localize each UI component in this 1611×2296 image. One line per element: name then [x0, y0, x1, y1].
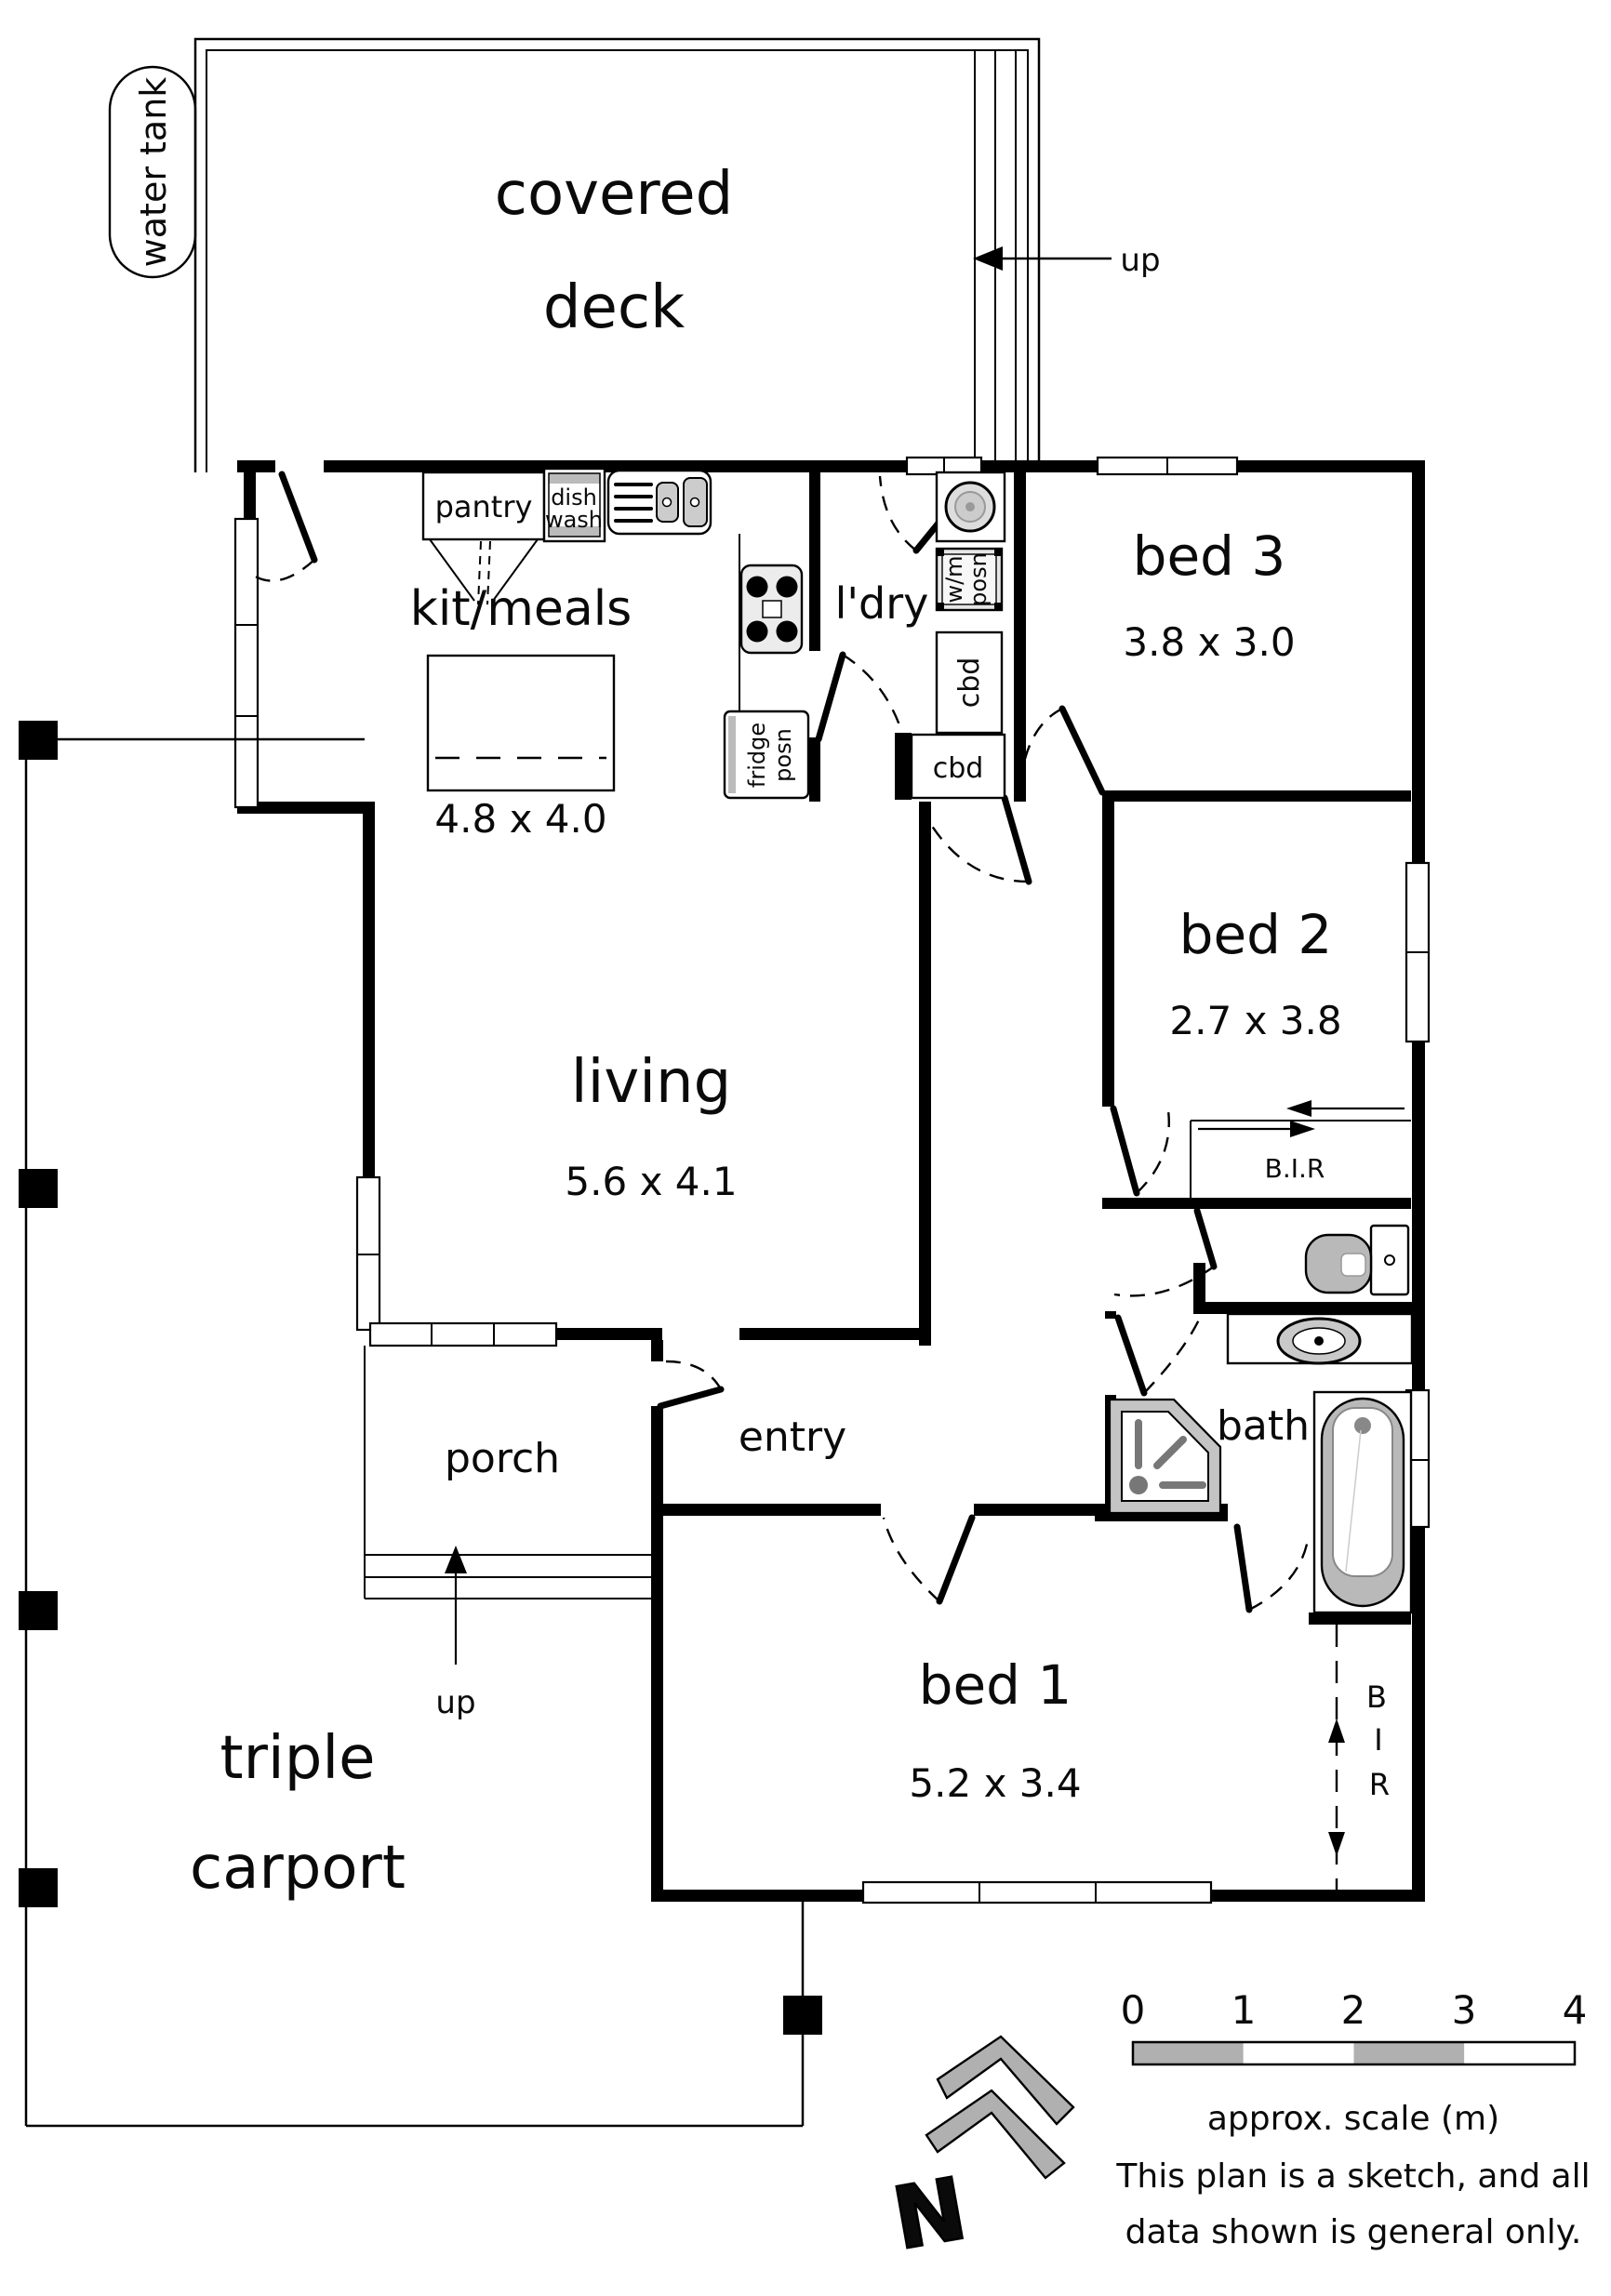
window [1406, 863, 1429, 1042]
wm-label-2: posn [965, 552, 992, 606]
water-tank-label: water tank [133, 77, 174, 268]
window [235, 519, 258, 807]
window [370, 1323, 556, 1346]
porch-up-label: up [435, 1684, 475, 1721]
deck-up-arrow-icon [973, 246, 1112, 271]
bed3-room: bed 3 3.8 x 3.0 [1123, 524, 1295, 665]
bed1-room: bed 1 5.2 x 3.4 B I R [909, 1625, 1390, 1890]
door [884, 1518, 972, 1601]
kitchen: pantry dish wash [410, 469, 808, 842]
living-label: living [571, 1048, 731, 1117]
bed2-bir: B.I.R [1191, 1100, 1411, 1198]
walls [237, 460, 1425, 1902]
door [1019, 709, 1102, 792]
bed2-dims: 2.7 x 3.8 [1169, 998, 1341, 1043]
bed1-dims: 5.2 x 3.4 [909, 1760, 1081, 1806]
bathtub [1314, 1392, 1411, 1613]
deck-label-2: deck [543, 273, 685, 342]
bed1-label: bed 1 [919, 1653, 1072, 1717]
sliding-door-arrows-icon [1198, 1100, 1405, 1137]
deck-label-1: covered [495, 160, 734, 229]
scale-tick-0: 0 [1121, 1987, 1146, 2033]
floor-plan-page: water tank covered deck up [0, 0, 1611, 2296]
carport-post [783, 1996, 822, 2035]
cbd-lower-label: cbd [933, 752, 984, 785]
scale-bar: 0 1 2 3 4 approx. scale (m) This plan is… [1115, 1987, 1590, 2251]
carport-label-1: triple [220, 1724, 376, 1793]
toilet [1306, 1226, 1408, 1294]
wm-label-1: w/m [941, 555, 967, 603]
dishwasher-label-2: wash [545, 507, 603, 533]
laundry-label: l'dry [835, 578, 929, 629]
kitchen-label: kit/meals [410, 581, 632, 637]
cupboard-lower: cbd [912, 735, 1005, 798]
washing-machine: w/m posn [937, 549, 1002, 610]
door [1113, 1108, 1169, 1193]
window [357, 1177, 379, 1330]
disclaimer-line-2: data shown is general only. [1125, 2213, 1582, 2251]
bathroom: bath [1110, 1314, 1412, 1613]
bath-label: bath [1217, 1402, 1310, 1450]
bed1-bir-r: R [1369, 1767, 1390, 1802]
cupboard-upper: cbd [937, 632, 1002, 733]
porch: porch up [365, 1346, 651, 1721]
door [1237, 1527, 1309, 1610]
carport-post [19, 1591, 58, 1630]
bed1-bir-b: B [1366, 1679, 1387, 1715]
dishwasher: dish wash [544, 469, 605, 541]
laundry-tub [937, 472, 1005, 541]
disclaimer-line-1: This plan is a sketch, and all [1115, 2157, 1590, 2196]
stove [741, 565, 802, 653]
fridge-label-1: fridge [744, 723, 770, 788]
door [1118, 1309, 1204, 1393]
fridge-label-2: posn [770, 728, 796, 782]
bed1-bir-i: I [1374, 1722, 1382, 1758]
bed1-bir: B I R [1328, 1625, 1390, 1890]
door [919, 798, 1029, 882]
scale-tick-4: 4 [1563, 1987, 1588, 2033]
north-arrow-icon: N [885, 2037, 1073, 2269]
carport-post [19, 1868, 58, 1907]
bed2-label: bed 2 [1179, 903, 1333, 966]
pantry-label: pantry [435, 489, 533, 524]
covered-deck: covered deck up [195, 39, 1161, 472]
entry-area: entry [739, 1413, 846, 1461]
carport-post [19, 721, 58, 760]
door [660, 1361, 721, 1406]
windows [235, 458, 1429, 1903]
fridge: fridge posn [725, 711, 808, 798]
meals-table [428, 656, 614, 790]
vanity [1228, 1314, 1412, 1363]
shower [1110, 1400, 1220, 1513]
window [1098, 458, 1237, 474]
scale-tick-2: 2 [1341, 1987, 1366, 2033]
sink [608, 471, 711, 534]
porch-up-arrow-icon [445, 1546, 467, 1665]
carport: triple carport [19, 721, 822, 2126]
entry-label: entry [739, 1413, 846, 1461]
bed2-bir-label: B.I.R [1265, 1153, 1325, 1184]
porch-label: porch [445, 1435, 560, 1482]
scale-tick-3: 3 [1452, 1987, 1477, 2033]
deck-up-label: up [1120, 242, 1160, 279]
living-dims: 5.6 x 4.1 [565, 1159, 737, 1204]
bed3-label: bed 3 [1133, 524, 1286, 588]
bed3-dims: 3.8 x 3.0 [1123, 619, 1295, 665]
scale-tick-1: 1 [1232, 1987, 1257, 2033]
north-label: N [885, 2159, 973, 2270]
laundry: l'dry w/m posn cbd cbd [835, 472, 1005, 798]
bed2-room: bed 2 2.7 x 3.8 B.I.R [1169, 903, 1411, 1198]
cbd-upper-label: cbd [953, 657, 986, 709]
carport-post [19, 1169, 58, 1208]
kitchen-dims: 4.8 x 4.0 [434, 796, 606, 842]
water-tank: water tank [110, 67, 195, 277]
living-room: living 5.6 x 4.1 [565, 1048, 737, 1204]
door [819, 655, 904, 739]
window [863, 1882, 1211, 1903]
carport-label-2: carport [190, 1834, 406, 1903]
scale-caption: approx. scale (m) [1207, 2100, 1499, 2138]
